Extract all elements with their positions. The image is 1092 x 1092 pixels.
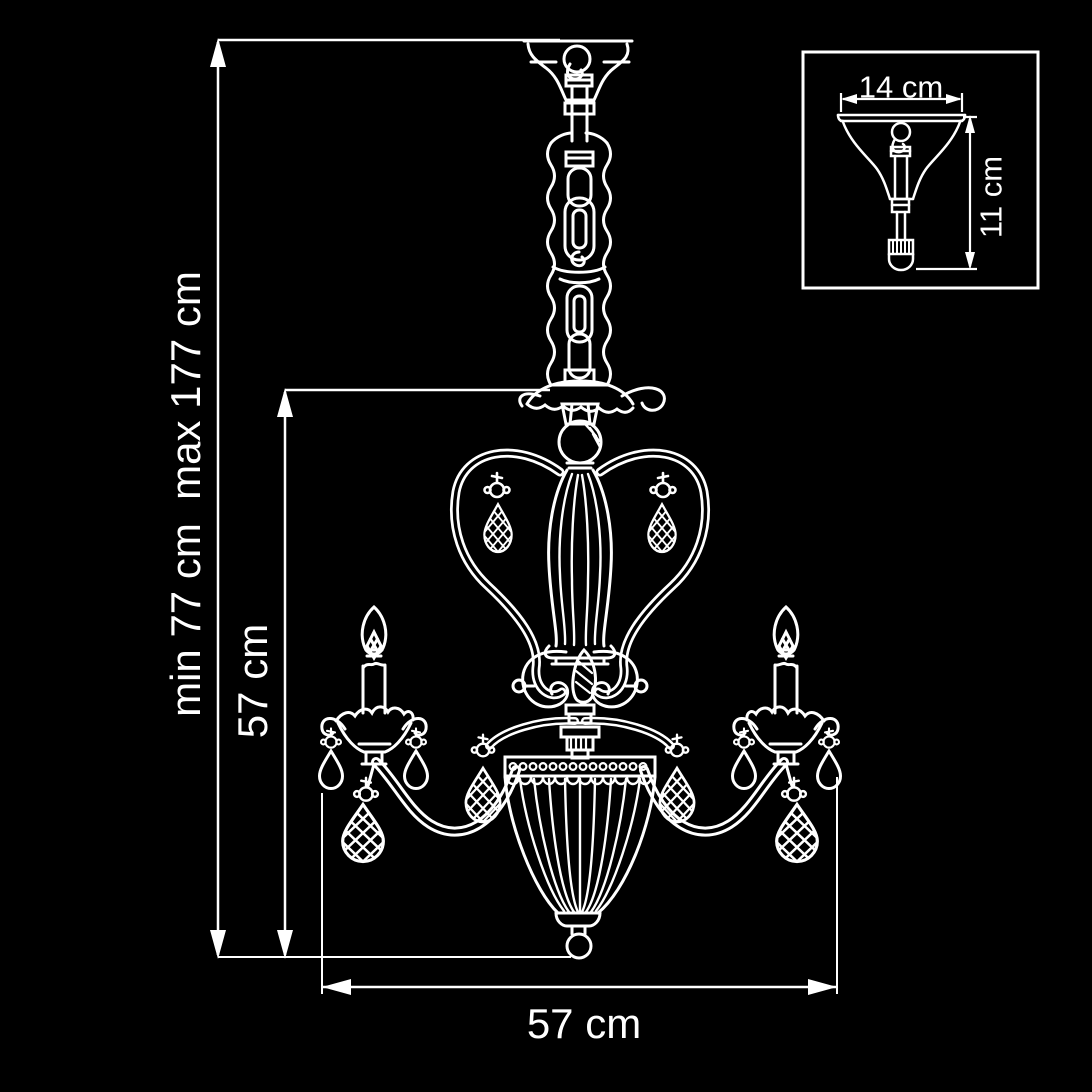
diagram-canvas: min 77 cm max 177 cm 57 cm 57 cm 14 cm 1…	[0, 0, 1092, 1092]
inset-drawing	[838, 115, 965, 270]
height-range-label: min 77 cm max 177 cm	[165, 271, 207, 717]
bowl	[505, 757, 655, 958]
chandelier-drawing	[320, 41, 841, 958]
inset-width-label: 14 cm	[859, 72, 943, 103]
side-unit-right	[585, 453, 841, 886]
inset-height-label: 11 cm	[976, 156, 1007, 238]
chain-sleeve	[548, 133, 611, 385]
side-unit-left	[320, 453, 576, 886]
width-label: 57 cm	[527, 1003, 641, 1045]
central-column	[513, 421, 647, 758]
crown	[520, 381, 665, 424]
ceiling-canopy	[524, 41, 632, 141]
hanging-height-label: 57 cm	[232, 624, 274, 738]
ball-finial	[567, 934, 591, 958]
